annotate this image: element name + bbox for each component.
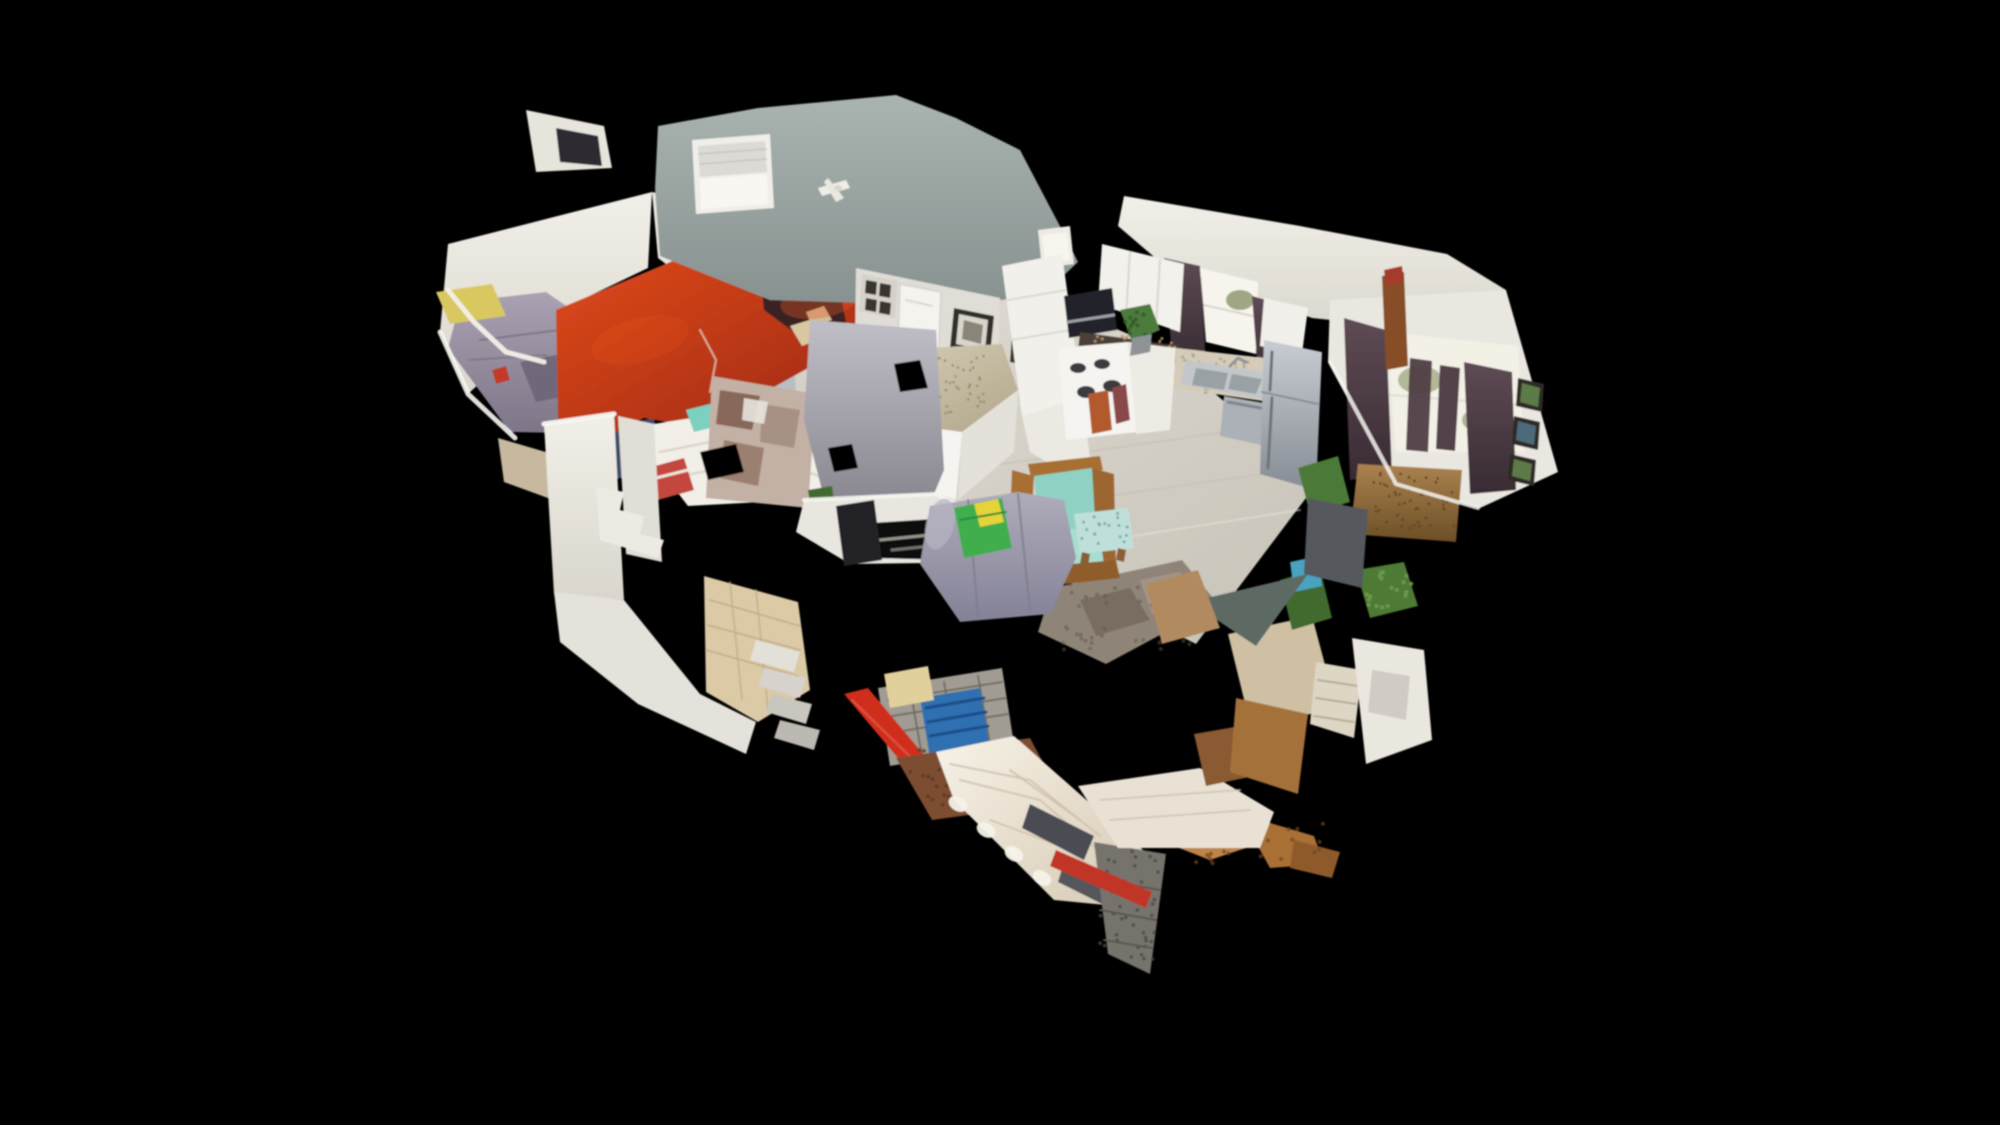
black-jacket [836,500,882,566]
collage-photo-1 [865,280,877,295]
burner-1 [1070,363,1086,373]
collage-photo-4 [879,301,891,315]
dining-chair [1382,272,1408,370]
dollhouse-model-canvas[interactable] [0,0,2000,1125]
fridge-handle-1 [1270,352,1272,390]
frames-collage [859,274,898,318]
dining-curtain-mid-1 [1406,358,1432,452]
fixture-shadow [1368,670,1410,720]
burner-2 [1094,359,1110,369]
dark-slab-fragment [1304,498,1368,588]
dollhouse-viewport[interactable] [0,0,2000,1125]
dining-curtain-right [1464,362,1516,494]
sink-window-foliage [1226,290,1254,310]
mottle-patch-white [742,398,768,424]
collage-photo-2 [879,283,891,298]
microwave [1064,288,1117,338]
kitchen-window-glass [700,174,768,209]
ceiling-fan-hub [834,185,842,191]
collage-photo-3 [865,298,877,312]
ottoman [1074,508,1134,554]
lower-cabinets-mid [1128,342,1176,434]
oven-towel-orange [1088,390,1112,434]
scan-gray-slab [804,320,944,498]
dining-table [1350,464,1462,542]
